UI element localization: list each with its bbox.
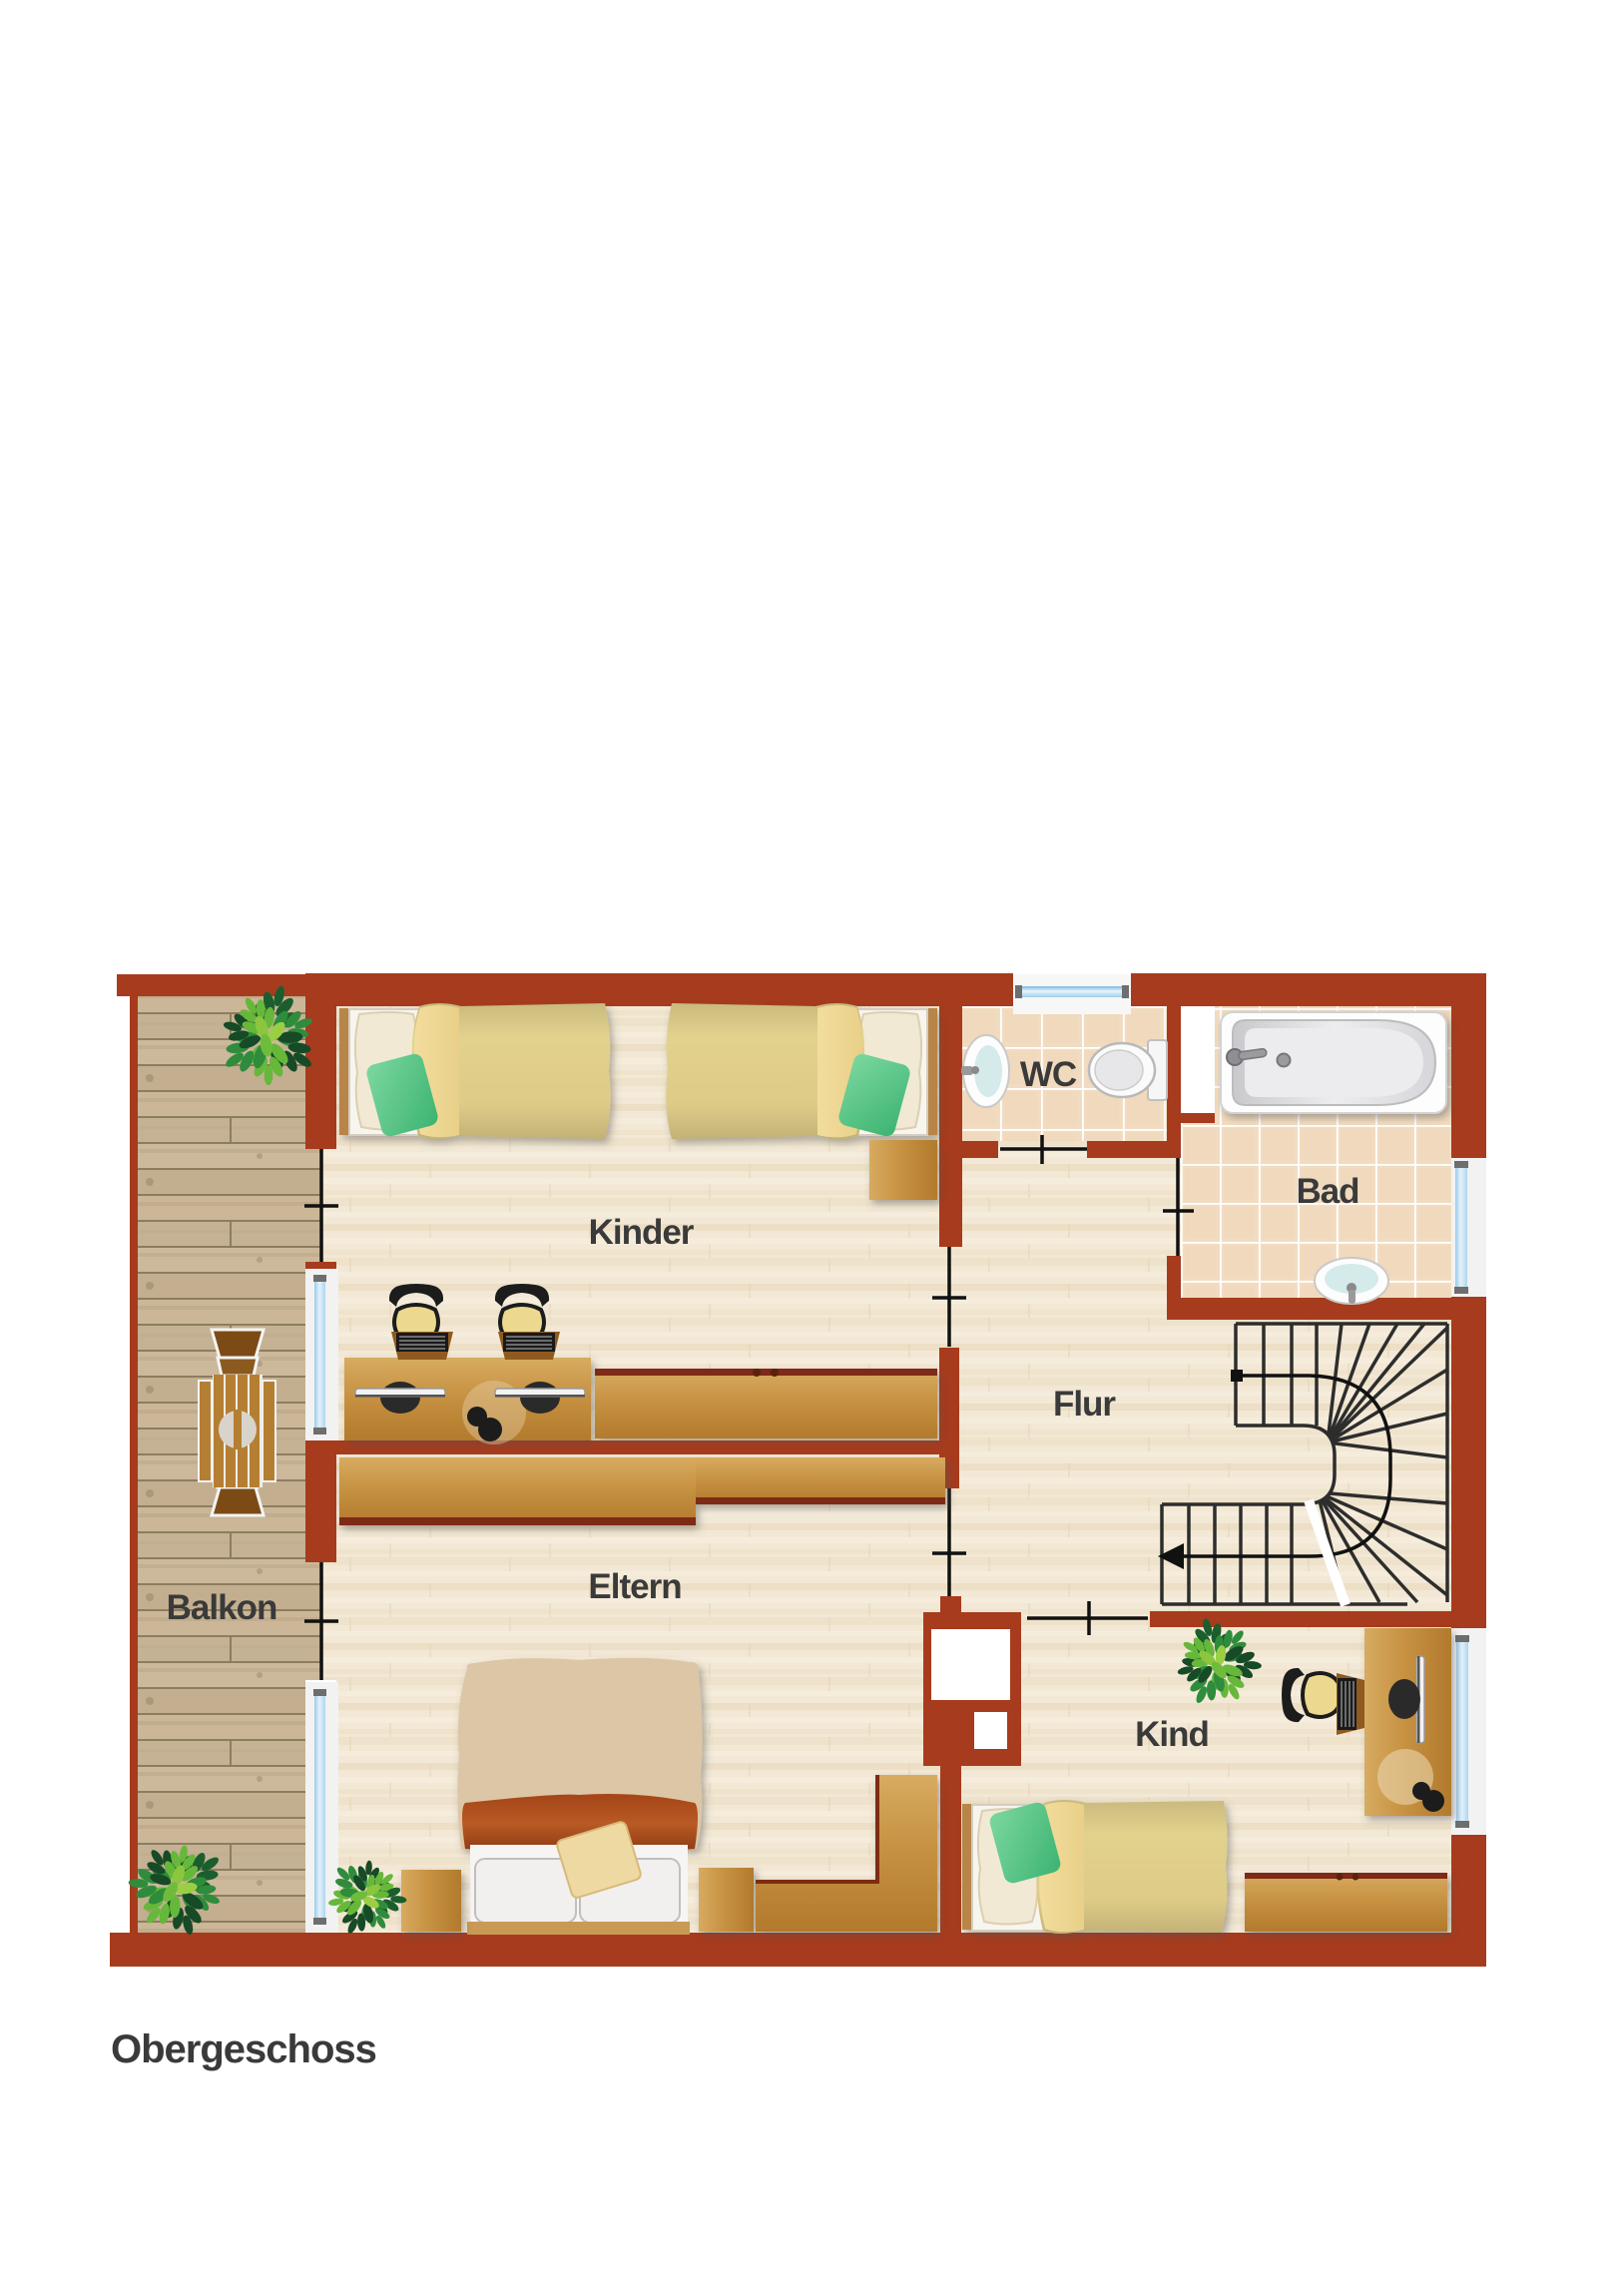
svg-text:Bad: Bad	[1296, 1172, 1358, 1211]
svg-text:WC: WC	[1020, 1055, 1077, 1094]
svg-text:Obergeschoss: Obergeschoss	[111, 2027, 376, 2071]
svg-text:Balkon: Balkon	[167, 1588, 277, 1627]
svg-text:Eltern: Eltern	[588, 1567, 681, 1606]
svg-text:Kinder: Kinder	[589, 1213, 695, 1252]
svg-text:Flur: Flur	[1053, 1385, 1116, 1424]
svg-text:Kind: Kind	[1135, 1715, 1209, 1754]
